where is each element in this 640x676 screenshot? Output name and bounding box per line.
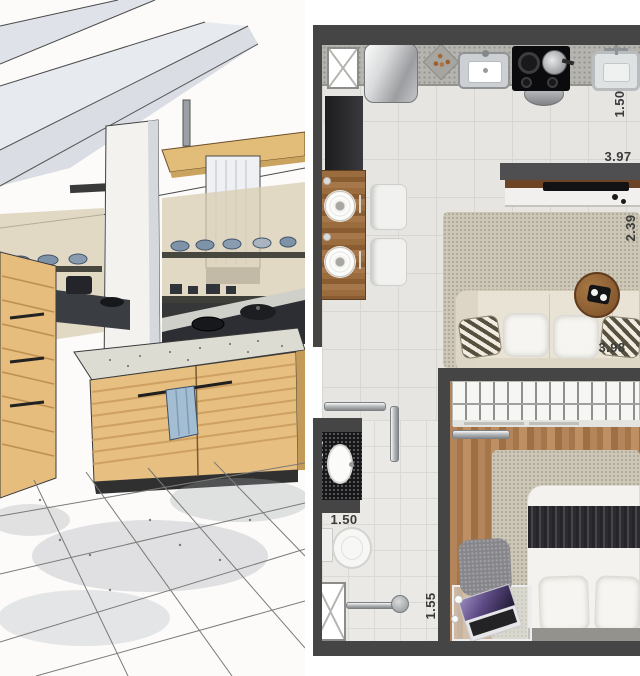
- cup-icon: [600, 294, 607, 301]
- dimension-shower-width: 1.55: [423, 586, 439, 626]
- place-setting-plate: [325, 191, 355, 221]
- pot: [192, 317, 224, 331]
- burner-icon: [521, 77, 532, 88]
- granite-vanity: [316, 432, 362, 500]
- tv-icon: [543, 182, 629, 191]
- double-bed: [527, 485, 640, 641]
- faucet-stem-icon: [615, 45, 618, 55]
- wardrobe-rail: [453, 403, 640, 405]
- cup-icon: [451, 615, 459, 623]
- table-tray: [587, 284, 612, 305]
- cup-icon: [591, 289, 598, 296]
- refrigerator: [364, 43, 418, 103]
- kitchen-sink: [458, 52, 510, 89]
- tall-black-cabinet: [325, 96, 363, 170]
- service-sink-basin: [603, 63, 630, 82]
- burner-icon: [547, 77, 558, 88]
- knife-icon: [359, 251, 361, 269]
- bed-pillow: [594, 575, 640, 633]
- shower-arm: [346, 602, 396, 609]
- tall-wood-cabinet: [0, 252, 56, 498]
- sink-drain-icon: [483, 68, 488, 73]
- hood-duct: [183, 100, 190, 146]
- bed-pillow: [538, 575, 590, 633]
- burner-icon: [518, 52, 540, 74]
- dimension-bedroom-width: 3.98: [592, 340, 632, 356]
- cup-icon: [454, 595, 463, 604]
- headboard: [528, 628, 640, 642]
- dish: [223, 239, 241, 249]
- wardrobe-handle: [529, 422, 579, 425]
- column: [104, 120, 160, 380]
- dish: [69, 254, 87, 264]
- glass-icon: [323, 177, 331, 185]
- living-bedroom-wall: [438, 368, 640, 381]
- sink-faucet-icon: [482, 50, 489, 57]
- floor-plan-panel: 1.50 3.97 2.39 3.98 1.50 1.55: [313, 25, 640, 656]
- dimension-living-width: 3.97: [598, 149, 638, 165]
- left-exterior-wall: [313, 418, 322, 641]
- bottom-exterior-wall: [313, 641, 640, 656]
- dimension-living-depth: 2.39: [623, 208, 639, 248]
- console-decor-icon: [621, 199, 626, 204]
- tv-panel-wall: [500, 163, 640, 180]
- entry-door-leaf: [324, 402, 386, 411]
- dimension-kitchen-depth: 1.50: [612, 84, 628, 124]
- hall-bedroom-wall: [438, 368, 450, 641]
- dining-chair: [370, 238, 407, 286]
- console-decor-icon: [612, 194, 618, 200]
- bathroom-door-leaf: [390, 406, 399, 462]
- dish: [171, 241, 189, 251]
- toilet-bowl: [341, 536, 363, 560]
- dining-chair: [370, 184, 407, 230]
- glass-icon: [323, 233, 331, 241]
- open-shelf: [162, 252, 305, 258]
- vanity-faucet-icon: [349, 462, 354, 467]
- wardrobe-handle: [464, 422, 524, 425]
- cooktop: [512, 46, 570, 91]
- cushion-seam: [549, 294, 550, 358]
- ventilation-shaft: [327, 47, 359, 89]
- kettle: [66, 276, 92, 294]
- top-exterior-wall: [313, 25, 640, 45]
- dish: [196, 240, 214, 250]
- striped-pillow: [457, 314, 502, 359]
- bedroom-sliding-door: [452, 430, 510, 439]
- white-pillow: [503, 313, 549, 357]
- shower-head: [391, 595, 409, 613]
- knife-icon: [359, 195, 361, 213]
- toilet: [332, 527, 372, 569]
- sketch-panel: [0, 0, 305, 676]
- composite-image: 1.50 3.97 2.39 3.98 1.50 1.55: [0, 0, 640, 676]
- dimension-bathroom-width: 1.50: [324, 512, 364, 528]
- dish: [253, 238, 271, 248]
- hand-towel: [166, 386, 198, 440]
- dish: [280, 237, 296, 247]
- wardrobe-with-hangers: [452, 381, 640, 426]
- striped-bed-runner: [528, 506, 640, 548]
- left-exterior-wall: [313, 25, 322, 347]
- place-setting-plate: [325, 247, 355, 277]
